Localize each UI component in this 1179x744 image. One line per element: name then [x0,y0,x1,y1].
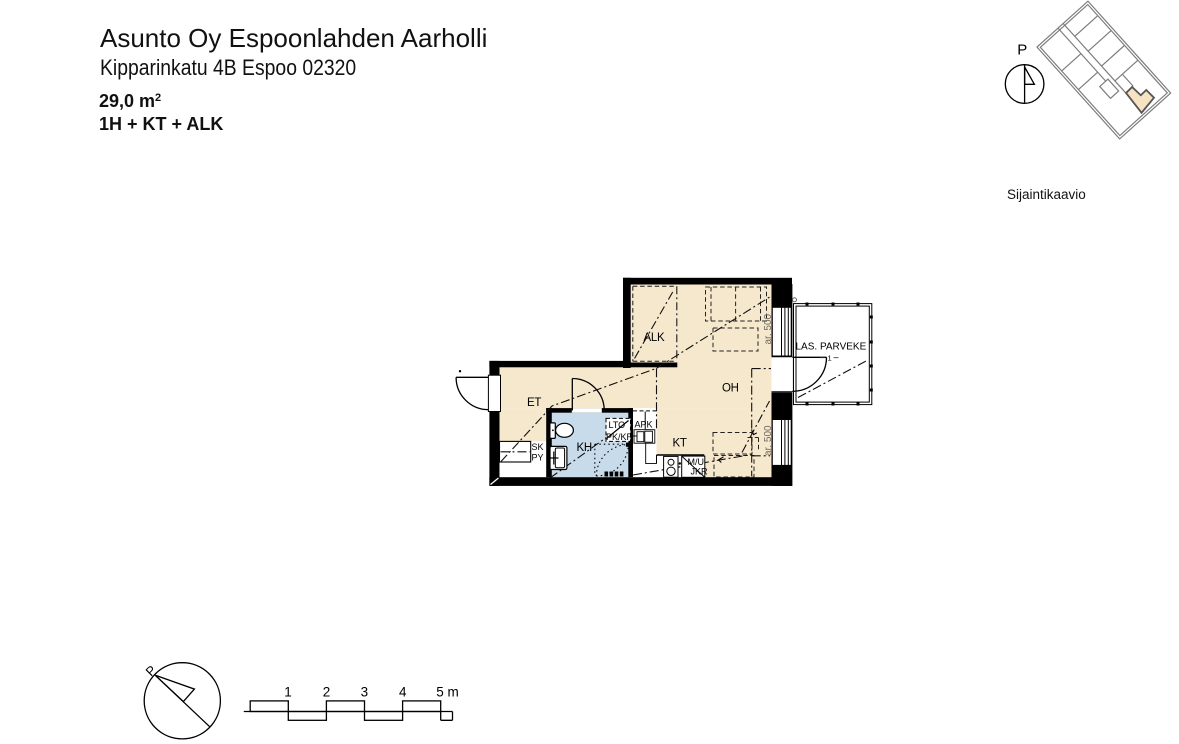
svg-text:2: 2 [323,684,331,699]
svg-text:JKR: JKR [691,467,709,477]
svg-text:P: P [1017,42,1027,59]
svg-text:ET: ET [527,397,541,409]
svg-text:M/U: M/U [688,457,705,467]
svg-text:ar. 500: ar. 500 [763,313,774,344]
svg-text:4: 4 [399,684,407,699]
svg-text:OH: OH [722,383,739,395]
svg-text:APK: APK [635,420,653,430]
svg-text:PK/KR: PK/KR [606,432,634,442]
svg-text:KT: KT [673,438,687,450]
svg-text:5 m: 5 m [436,684,459,699]
svg-text:1: 1 [284,684,292,699]
svg-text:1: 1 [828,354,832,363]
svg-text:ar. 500: ar. 500 [763,425,774,456]
svg-text:SK: SK [532,442,544,452]
svg-text:3: 3 [361,684,369,699]
svg-text:LAS. PARVEKE: LAS. PARVEKE [796,342,867,353]
svg-text:ALK: ALK [644,332,665,344]
svg-text:KH: KH [577,442,592,454]
svg-text:LTO: LTO [609,420,626,430]
svg-text:PY: PY [532,453,544,463]
